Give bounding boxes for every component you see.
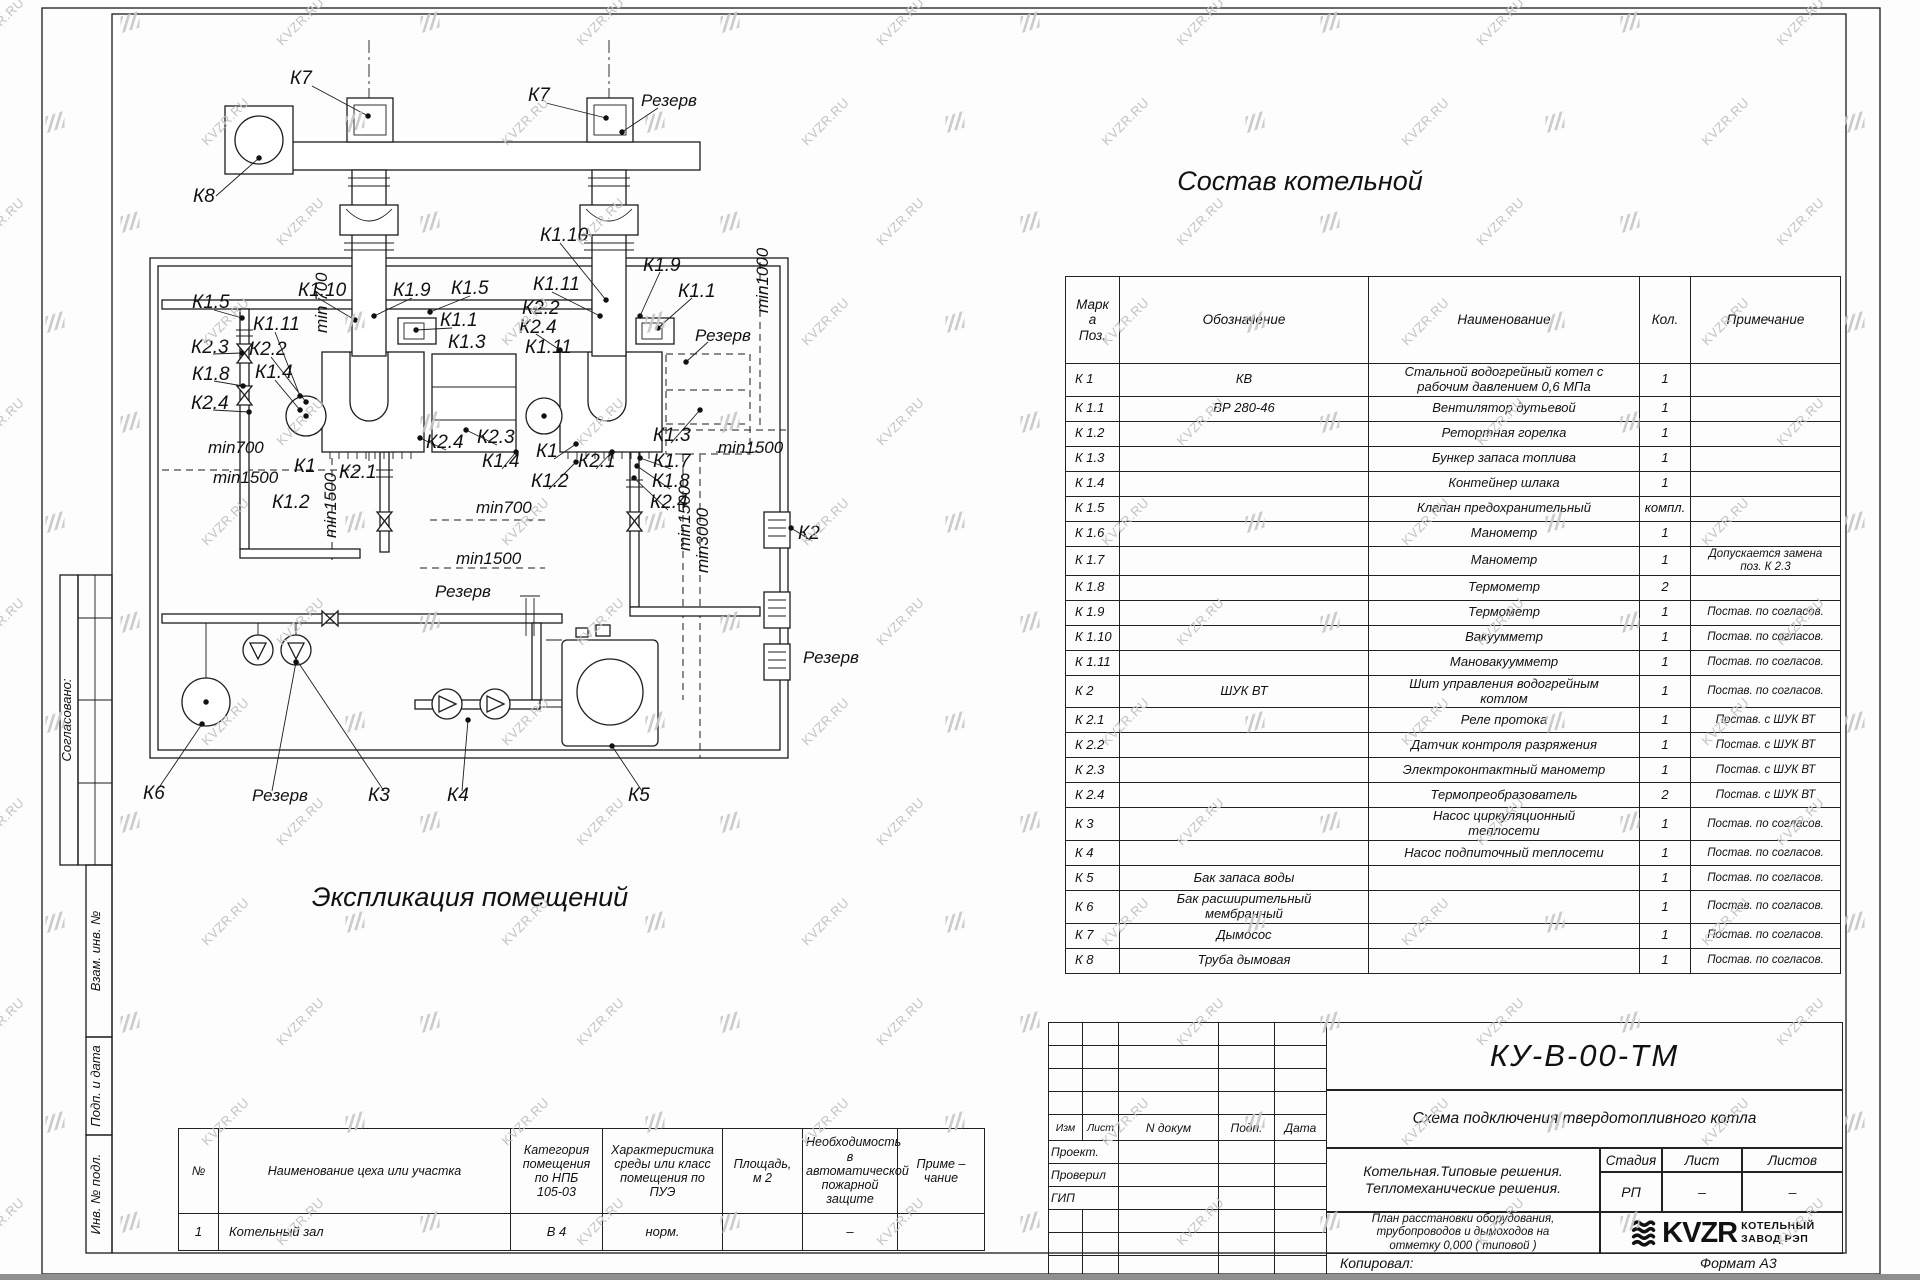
drawing-label: К4 [447, 785, 469, 806]
explication-header: №Наименование цеха или участкаКатегория … [179, 1129, 985, 1214]
drawing-label: К2.3 [191, 337, 229, 358]
drawing-label: К2.2 [522, 298, 560, 319]
table-row: К 6Бак расширительный мембранный1Постав.… [1066, 891, 1841, 924]
document-title: Схема подключения твердотопливного котла [1326, 1090, 1843, 1148]
composition-header: Марк а Поз.ОбозначениеНаименованиеКол.Пр… [1066, 277, 1841, 364]
drawing-label: К2.4 [426, 432, 464, 453]
sheet-label: Лист [1662, 1148, 1742, 1172]
drawing-label: К3 [368, 785, 390, 806]
drawing-label: К1.10 [540, 225, 589, 246]
plan-description: План расстановки оборудования, трубопров… [1326, 1212, 1600, 1254]
drawing-label: min 700 [312, 272, 331, 333]
table-row: К 1КВСтальной водогрейный котел с рабочи… [1066, 364, 1841, 397]
drawing-label: К2.4 [191, 393, 229, 414]
drawing-label: К8 [193, 186, 215, 207]
column-header: Категория помещения по НПБ 105-03 [511, 1129, 603, 1214]
drawing-label: Резерв [435, 582, 491, 601]
logo-cell: KVZR КОТЕЛЬНЫЙ ЗАВОД РЭП [1600, 1212, 1843, 1254]
column-header: Характеристика среды или класс помещения… [603, 1129, 723, 1214]
stamp-agreed: Согласовано: [59, 678, 74, 761]
table-row: К 5Бак запаса воды1Постав. по согласов. [1066, 866, 1841, 891]
org-solutions: Котельная.Типовые решения. Тепломеханиче… [1326, 1148, 1600, 1212]
column-header: Приме – чание [898, 1129, 985, 1214]
drawing-label: К1.4 [482, 451, 520, 472]
role-project: Проект. [1049, 1141, 1119, 1164]
flue-left [352, 170, 386, 356]
role-checked: Проверил [1049, 1164, 1119, 1187]
column-header: Примечание [1691, 277, 1841, 364]
table-row: К 1.3Бункер запаса топлива1 [1066, 446, 1841, 471]
table-row: К 1.8Термометр2 [1066, 575, 1841, 600]
bottom-edge [0, 1274, 1920, 1280]
drawing-label: К1.5 [192, 292, 230, 313]
column-header: Необходимость в автоматической пожарной … [803, 1129, 898, 1214]
role-gip: ГИП [1049, 1187, 1119, 1210]
drawing-label: min1500 [675, 485, 694, 551]
composition-rows: К 1КВСтальной водогрейный котел с рабочи… [1066, 364, 1841, 974]
table-row: К 1.7Манометр1Допускается замена поз. К … [1066, 546, 1841, 575]
col-data: Дата [1275, 1115, 1327, 1141]
drawing-label: К1.1 [678, 281, 716, 302]
table-row: К 2.3Электроконтактный манометр1Постав. … [1066, 758, 1841, 783]
drawing-label: К1.4 [255, 362, 293, 383]
composition-title: Состав котельной [1080, 166, 1520, 197]
drawing-label: min3000 [693, 507, 712, 573]
drawing-label: К1.7 [653, 451, 692, 472]
logo-caption: КОТЕЛЬНЫЙ ЗАВОД РЭП [1741, 1220, 1815, 1246]
drawing-label: Резерв [252, 786, 308, 805]
table-row: К 7Дымосос1Постав. по согласов. [1066, 923, 1841, 948]
composition-table: Марк а Поз.ОбозначениеНаименованиеКол.Пр… [1065, 276, 1841, 974]
stamp-inv: Инв. № подл. [88, 1154, 103, 1235]
kvzr-logo-icon [1628, 1219, 1658, 1247]
drawing-label: К1.11 [525, 337, 572, 358]
drawing-label: К7 [290, 68, 313, 89]
table-row: К 1.10Вакуумметр1Постав. по согласов. [1066, 625, 1841, 650]
column-header: Площадь, м 2 [723, 1129, 803, 1214]
table-row: К 1.1ВР 280-46Вентилятор дутьевой1 [1066, 396, 1841, 421]
bottom-equipment [182, 623, 658, 746]
table-row: К 2.1Реле протока1Постав. с ШУК ВТ [1066, 708, 1841, 733]
drawing-label: К1.5 [451, 278, 489, 299]
drawing-label: К2 [798, 523, 820, 544]
drawing-label: К2.2 [249, 339, 287, 360]
drawing-label: К6 [143, 783, 165, 804]
control-cabinet-k2 [764, 512, 790, 680]
stamp-podp: Подп. и дата [88, 1045, 103, 1126]
table-row: К 4Насос подпиточный теплосети1Постав. п… [1066, 841, 1841, 866]
table-row: К 2.2Датчик контроля разряжения1Постав. … [1066, 733, 1841, 758]
table-row: К 1.2Ретортная горелка1 [1066, 421, 1841, 446]
document-number: КУ-В-00-ТМ [1326, 1022, 1843, 1090]
drawing-label: min1500 [213, 468, 279, 487]
format-label: Формат А3 [1700, 1255, 1777, 1271]
col-ndoc: N докум [1119, 1115, 1219, 1141]
title-block-left-grid: Изм Лист N докум Подп. Дата Проект. Пров… [1048, 1022, 1327, 1279]
stage-value: РП [1600, 1172, 1662, 1212]
stamp-vzam: Взам. инв. № [88, 911, 103, 991]
column-header: Кол. [1640, 277, 1691, 364]
col-podp: Подп. [1219, 1115, 1275, 1141]
drawing-label: К7 [528, 85, 551, 106]
column-header: Наименование цеха или участка [219, 1129, 511, 1214]
drawing-label: К1.11 [533, 274, 580, 295]
table-row: К 2.4Термопреобразователь2Постав. с ШУК … [1066, 783, 1841, 808]
table-row: К 1.6Манометр1 [1066, 521, 1841, 546]
table-row: 1Котельный залВ 4норм.– [179, 1214, 985, 1251]
table-row: К 2ШУК ВТШит управления водогрейным котл… [1066, 675, 1841, 708]
stage-label: Стадия [1600, 1148, 1662, 1172]
drawing-label: К1.3 [448, 332, 486, 353]
drawing-label: min1500 [456, 549, 522, 568]
drawing-label: К1.11 [253, 314, 300, 335]
table-row: К 1.4Контейнер шлака1 [1066, 471, 1841, 496]
sheets-label: Листов [1742, 1148, 1843, 1172]
drawing-label: К1.2 [531, 471, 569, 492]
drawing-label: Резерв [641, 91, 697, 110]
explication-rows: 1Котельный залВ 4норм.– [179, 1214, 985, 1251]
table-row: К 1.5Клапан предохранительныйкомпл. [1066, 496, 1841, 521]
drawing-label: К1.1 [440, 310, 478, 331]
table-row: К 3Насос циркуляционный теплосети1Постав… [1066, 808, 1841, 841]
col-list: Лист [1083, 1115, 1119, 1141]
column-header: Обозначение [1120, 277, 1369, 364]
drawing-label: Резерв [803, 648, 859, 667]
drawing-label: min1500 [718, 438, 784, 457]
drawing-label: К1.3 [653, 425, 691, 446]
column-header: № [179, 1129, 219, 1214]
drawing-label: К1.2 [272, 492, 310, 513]
logo-text: KVZR [1662, 1217, 1737, 1250]
drawing-label: min700 [208, 438, 264, 457]
drawing-label: К2.1 [578, 451, 616, 472]
sheets-value: – [1742, 1172, 1843, 1212]
table-row: К 8Труба дымовая1Постав. по согласов. [1066, 948, 1841, 973]
column-header: Наименование [1369, 277, 1640, 364]
drawing-label: min700 [476, 498, 532, 517]
drawing-label: К2.3 [477, 427, 515, 448]
title-block-right: КУ-В-00-ТМ Схема подключения твердотопли… [1326, 1022, 1843, 1254]
drawing-label: Резерв [695, 326, 751, 345]
table-row: К 1.9Термометр1Постав. по согласов. [1066, 600, 1841, 625]
explication-title: Экспликация помещений [240, 882, 700, 913]
drawing-label: К1 [536, 441, 558, 462]
side-stamps: Согласовано: Взам. инв. № Подп. и дата И… [59, 575, 112, 1253]
drawing-label: К1.8 [192, 364, 230, 385]
col-izm: Изм [1049, 1115, 1083, 1141]
column-header: Марк а Поз. [1066, 277, 1120, 364]
explication-table: №Наименование цеха или участкаКатегория … [178, 1128, 985, 1251]
drawing-label: К1.9 [643, 255, 681, 276]
boiler-k1-right [560, 352, 662, 452]
drawing-label: min1000 [753, 247, 772, 313]
sheet-value: – [1662, 1172, 1742, 1212]
drawing-label: К2.4 [519, 317, 557, 338]
copied-label: Копировал: [1340, 1255, 1414, 1271]
drawing-label: min1500 [321, 472, 340, 538]
drawing-label: К1.9 [393, 280, 431, 301]
table-row: К 1.11Мановакуумметр1Постав. по согласов… [1066, 650, 1841, 675]
drawing-label: К1 [294, 456, 316, 477]
boiler-k1-left [322, 352, 424, 452]
flue-right [592, 170, 626, 356]
drawing-label: К5 [628, 785, 650, 806]
smoke-duct [292, 142, 700, 170]
drawing-label: К2.1 [339, 462, 377, 483]
